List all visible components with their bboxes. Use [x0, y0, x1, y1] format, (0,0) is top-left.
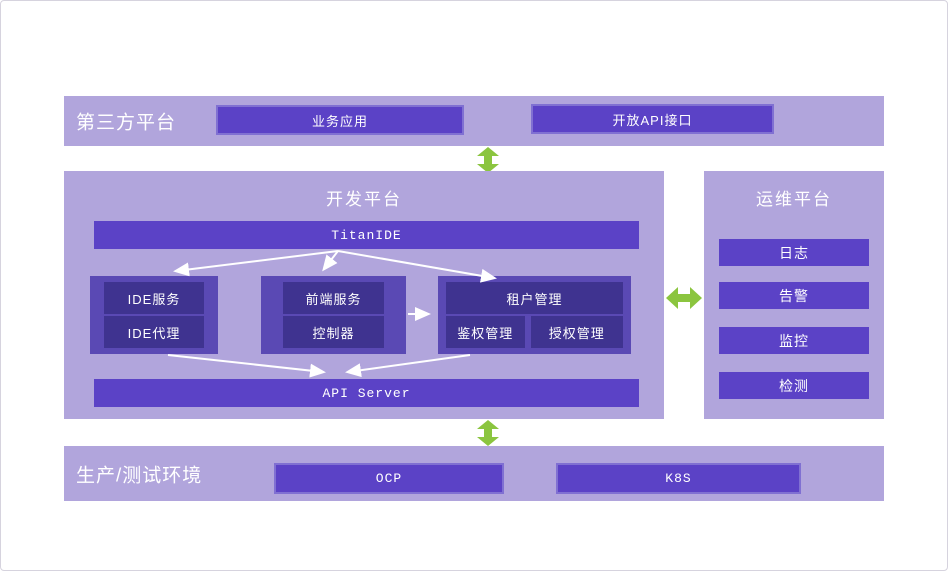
architecture-diagram: 第三方平台 业务应用 开放API接口 开发平台 TitanIDE IDE服务 I… [0, 0, 948, 571]
authentication-management-box: 鉴权管理 [446, 316, 525, 348]
tenant-management-box: 租户管理 [446, 282, 623, 314]
ide-service-box: IDE服务 [104, 282, 204, 314]
ide-service-group: IDE服务 IDE代理 [90, 276, 218, 354]
frontend-service-group: 前端服务 控制器 [261, 276, 406, 354]
open-api-box: 开放API接口 [531, 104, 774, 134]
titan-ide-bar: TitanIDE [94, 221, 639, 249]
monitoring-box: 监控 [719, 327, 869, 354]
ocp-box: OCP [274, 463, 504, 494]
environment-band: 生产/测试环境 OCP K8S [64, 446, 884, 501]
ide-proxy-box: IDE代理 [104, 316, 204, 348]
tenant-management-group: 租户管理 鉴权管理 授权管理 [438, 276, 631, 354]
dev-platform-title: 开发平台 [64, 185, 664, 210]
detection-box: 检测 [719, 372, 869, 399]
bidirectional-arrow-icon [666, 285, 702, 311]
authorization-management-box: 授权管理 [531, 316, 623, 348]
logs-box: 日志 [719, 239, 869, 266]
frontend-service-box: 前端服务 [283, 282, 384, 314]
bidirectional-arrow-icon [477, 420, 499, 446]
environment-title: 生产/测试环境 [76, 460, 202, 487]
business-app-box: 业务应用 [216, 105, 464, 135]
ops-platform-panel: 运维平台 日志 告警 监控 检测 [704, 171, 884, 419]
third-party-platform-title: 第三方平台 [76, 108, 176, 135]
dev-platform-panel: 开发平台 TitanIDE IDE服务 IDE代理 前端服务 控制器 租户管理 … [64, 171, 664, 419]
third-party-platform-band: 第三方平台 业务应用 开放API接口 [64, 96, 884, 146]
api-server-bar: API Server [94, 379, 639, 407]
k8s-box: K8S [556, 463, 801, 494]
ops-platform-title: 运维平台 [704, 185, 884, 210]
bidirectional-arrow-icon [477, 147, 499, 173]
alerts-box: 告警 [719, 282, 869, 309]
controller-box: 控制器 [283, 316, 384, 348]
